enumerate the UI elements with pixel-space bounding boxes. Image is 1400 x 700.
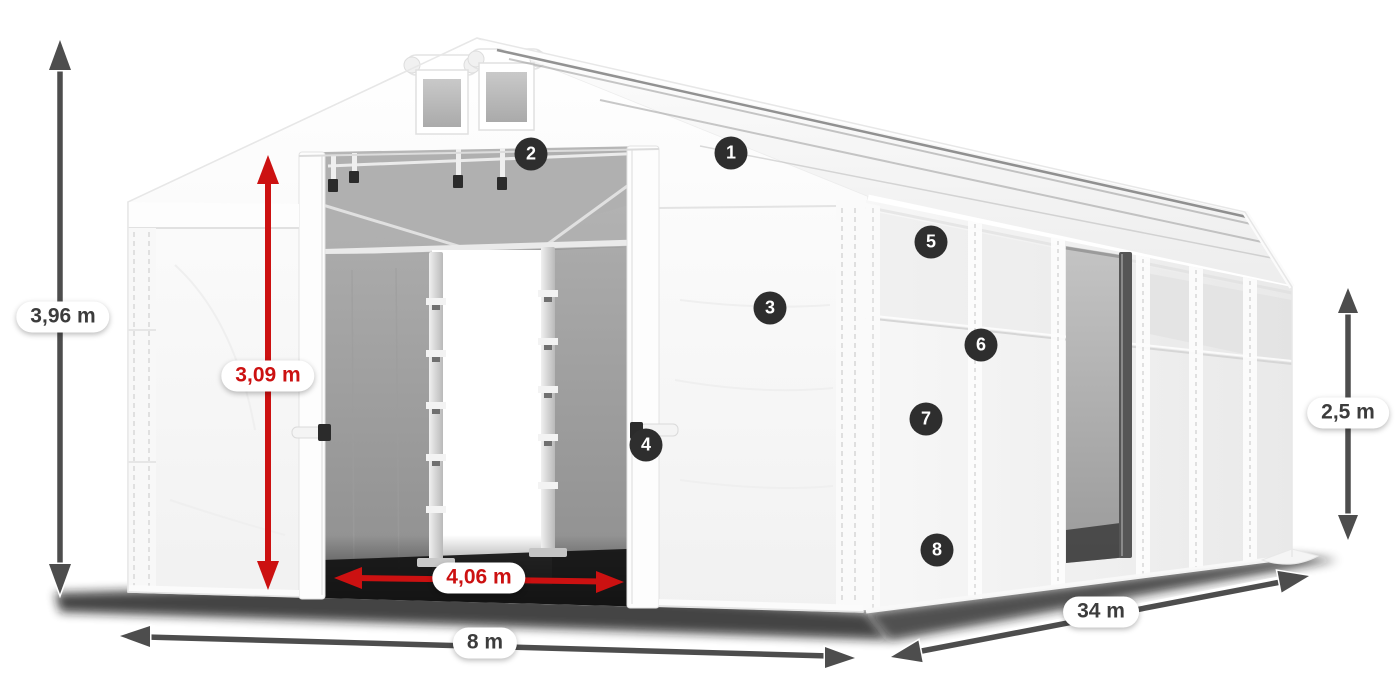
dimension-label-side-height: 2,5 m <box>1307 397 1389 428</box>
dimension-label-length: 34 m <box>1063 596 1139 627</box>
front-door-opening <box>323 146 653 611</box>
side-door-opening <box>1066 246 1132 563</box>
dimension-label-door-height: 3,09 m <box>221 360 314 391</box>
callout-5: 5 <box>915 226 948 259</box>
dimension-label-front-width: 8 m <box>453 627 517 658</box>
dimension-label-total-height: 3,96 m <box>16 301 109 332</box>
door-handle-left <box>292 424 331 441</box>
callout-6: 6 <box>965 329 998 362</box>
callout-3: 3 <box>754 292 787 325</box>
callout-8: 8 <box>921 534 954 567</box>
door-post-right <box>627 146 659 608</box>
diagram-canvas: 3,96 m 3,09 m 4,06 m 8 m 34 m 2,5 m 1 2 … <box>0 0 1400 700</box>
dimension-label-door-width: 4,06 m <box>432 562 525 593</box>
callout-4: 4 <box>630 429 663 462</box>
rear-opening <box>432 250 552 585</box>
callout-7: 7 <box>910 403 943 436</box>
callout-1: 1 <box>715 137 748 170</box>
tent-illustration <box>0 0 1400 700</box>
callout-2: 2 <box>515 138 548 171</box>
side-door-frame-pole <box>1119 252 1132 558</box>
